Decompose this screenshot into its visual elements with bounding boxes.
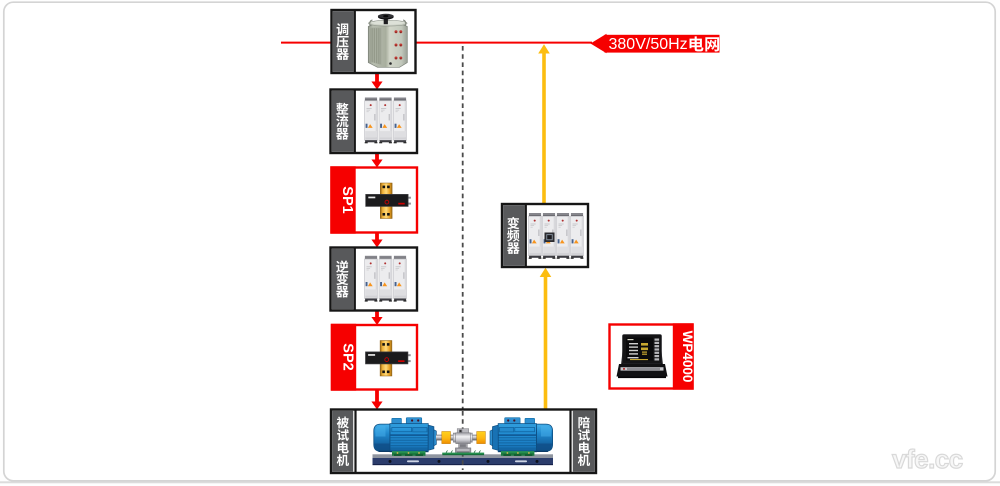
- svg-text:vfe.cc: vfe.cc: [892, 444, 963, 474]
- svg-text:WP4000: WP4000: [680, 331, 695, 383]
- svg-text:SP1: SP1: [339, 186, 355, 213]
- svg-text:SP2: SP2: [340, 343, 356, 370]
- svg-text:380V/50Hz: 380V/50Hz: [609, 36, 688, 53]
